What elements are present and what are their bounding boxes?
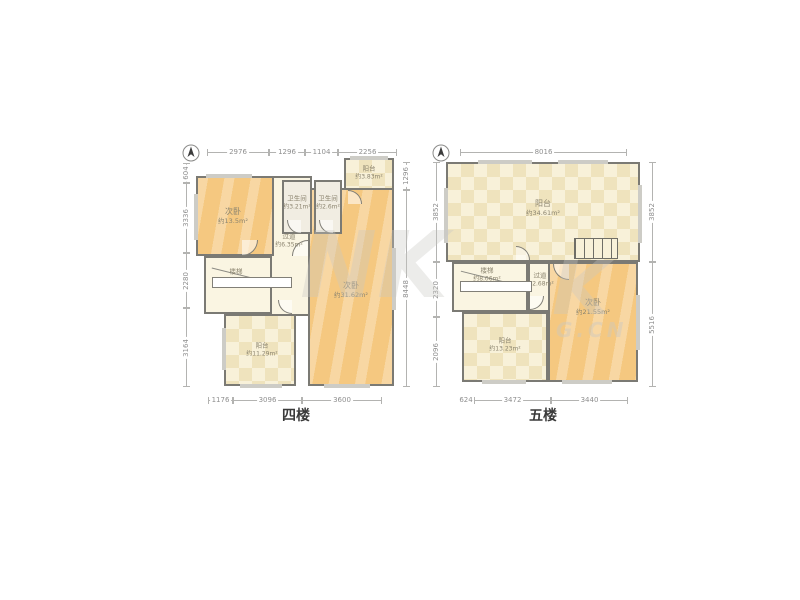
room-label-balcony-bottom: 阳台 约11.29m² — [246, 341, 277, 358]
dim-segment: 2280 — [180, 253, 192, 308]
room-name: 楼梯 — [473, 266, 501, 275]
room-name: 阳台 — [526, 198, 560, 209]
room-area: 约13.5m² — [218, 217, 248, 226]
window — [324, 384, 370, 388]
dim-segment: 3164 — [180, 308, 192, 387]
window — [478, 160, 532, 164]
dim-label: 1296 — [402, 165, 410, 187]
dim-label: 8016 — [533, 148, 555, 156]
dim-segment: 3336 — [180, 183, 192, 253]
room-area: 约3.21m² — [283, 203, 311, 211]
dim-label: 3096 — [257, 396, 279, 404]
stair-handrail-bar — [460, 281, 532, 292]
room-area: 约3.83m² — [355, 173, 383, 181]
window — [482, 380, 526, 384]
room-label-bedroom-large: 次卧 约31.62m² — [334, 280, 368, 300]
dim-label: 3600 — [331, 396, 353, 404]
room-name: 卫生间 — [283, 194, 311, 203]
dim-label: 3472 — [502, 396, 524, 404]
room-label-bedroom-small: 次卧 约13.5m² — [218, 206, 248, 226]
dim-label: 2320 — [432, 279, 440, 301]
compass-icon — [182, 144, 200, 166]
dim-label: 3164 — [182, 337, 190, 359]
room-name: 次卧 — [576, 297, 610, 308]
floorplan-canvas: 次卧 约13.5m² 卫生间 约3.21m² 卫生间 约2.6m² 阳台 约3.… — [0, 0, 800, 600]
dim-label: 2256 — [357, 148, 379, 156]
dim-segment: 8448 — [400, 190, 412, 387]
dim-label: 1296 — [276, 148, 298, 156]
room-area: 约13.23m² — [489, 345, 520, 353]
compass-icon — [432, 144, 450, 166]
floor5-title: 五楼 — [446, 405, 640, 425]
dim-segment: 3852 — [430, 162, 442, 262]
dim-label: 3336 — [182, 207, 190, 229]
window — [558, 160, 608, 164]
room-name: 楼梯 — [230, 267, 243, 276]
dim-segment: 1104 — [305, 146, 338, 158]
room-area: 约11.29m² — [246, 350, 277, 358]
dim-label: 8448 — [402, 278, 410, 300]
room-name: 阳台 — [355, 164, 383, 173]
room-area: 约6.35m² — [275, 241, 303, 249]
window — [350, 156, 388, 160]
dim-segment: 2096 — [430, 317, 442, 387]
stair-handrail-bar — [212, 277, 292, 288]
room-label-balcony: 阳台 约13.23m² — [489, 336, 520, 353]
dim-label: 604 — [182, 164, 190, 181]
dim-label: 1104 — [311, 148, 333, 156]
room-area: 约21.55m² — [576, 308, 610, 317]
dim-label: 2976 — [227, 148, 249, 156]
room-name: 次卧 — [218, 206, 248, 217]
room-name: 卫生间 — [316, 194, 340, 203]
ladder-icon — [574, 238, 618, 259]
window — [392, 248, 396, 310]
window — [638, 185, 642, 243]
dim-label: 624 — [457, 396, 474, 404]
dim-segment: 2976 — [207, 146, 269, 158]
window — [206, 174, 252, 178]
floor4-title: 四楼 — [196, 405, 396, 425]
window — [194, 194, 198, 240]
window — [222, 328, 226, 370]
window — [240, 384, 282, 388]
room-label-hallway: 过道 约6.35m² — [275, 232, 303, 249]
dim-label: 3852 — [648, 201, 656, 223]
dim-label: 5516 — [648, 314, 656, 336]
room-bedroom — [548, 262, 638, 382]
room-label-bedroom: 次卧 约21.55m² — [576, 297, 610, 317]
room-area: 约34.61m² — [526, 209, 560, 218]
dim-segment: 5516 — [646, 262, 658, 387]
dim-segment: 3852 — [646, 162, 658, 262]
window — [444, 188, 448, 243]
room-label-balcony-top: 阳台 约3.83m² — [355, 164, 383, 181]
room-label-terrace: 阳台 约34.61m² — [526, 198, 560, 218]
room-name: 次卧 — [334, 280, 368, 291]
room-label-bathroom-2: 卫生间 约2.6m² — [316, 194, 340, 211]
room-label-bathroom-1: 卫生间 约3.21m² — [283, 194, 311, 211]
dim-segment: 2320 — [430, 262, 442, 317]
dim-label: 2096 — [432, 341, 440, 363]
dim-segment: 8016 — [460, 146, 627, 158]
dim-label: 3440 — [579, 396, 601, 404]
room-name: 阳台 — [489, 336, 520, 345]
room-area: 约31.62m² — [334, 291, 368, 300]
dim-label: 2280 — [182, 270, 190, 292]
room-area: 约2.6m² — [316, 203, 340, 211]
dim-segment: 1296 — [269, 146, 305, 158]
window — [562, 380, 612, 384]
dim-segment: 1296 — [400, 162, 412, 190]
room-label-stairs: 楼梯 — [230, 267, 243, 276]
room-name: 过道 — [526, 271, 554, 280]
room-name: 阳台 — [246, 341, 277, 350]
dim-label: 1176 — [210, 396, 232, 404]
window — [636, 295, 640, 350]
room-name: 过道 — [275, 232, 303, 241]
dim-label: 3852 — [432, 201, 440, 223]
dim-segment: 604 — [180, 163, 192, 183]
